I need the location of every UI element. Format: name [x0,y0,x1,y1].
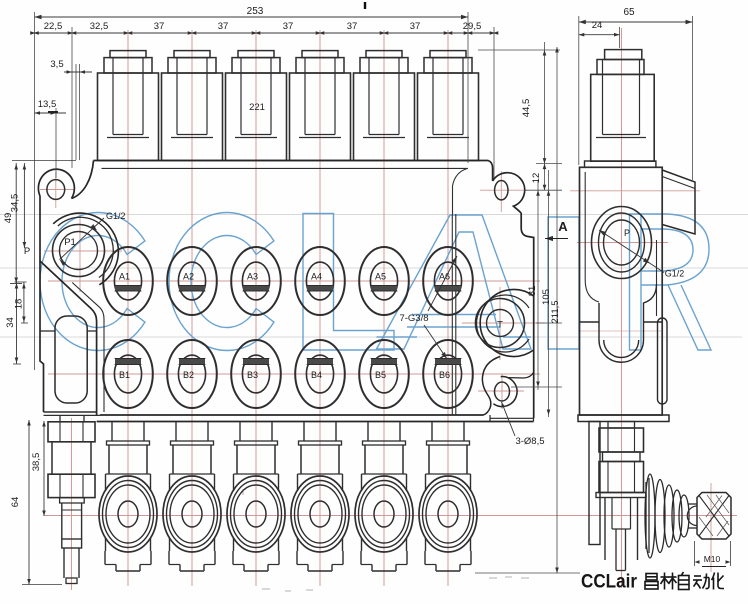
svg-text:B6: B6 [439,370,450,380]
svg-text:P: P [24,246,30,257]
svg-text:M10: M10 [704,554,721,564]
svg-text:24: 24 [592,20,603,31]
svg-text:A: A [558,219,568,234]
svg-text:G1/2: G1/2 [106,211,126,221]
svg-text:7-G3/8: 7-G3/8 [399,313,428,324]
svg-text:A5: A5 [375,272,386,282]
svg-text:A1: A1 [119,272,130,282]
svg-text:44,5: 44,5 [521,99,532,118]
svg-text:49: 49 [3,213,14,224]
svg-text:3,5: 3,5 [50,59,63,70]
svg-text:29,5: 29,5 [463,21,482,32]
svg-text:B1: B1 [119,370,130,380]
svg-text:A4: A4 [311,272,322,282]
svg-text:B3: B3 [247,370,258,380]
svg-text:22,5: 22,5 [44,21,63,32]
svg-text:37: 37 [347,21,358,32]
svg-text:B2: B2 [183,370,194,380]
svg-text:64: 64 [10,497,21,508]
svg-text:37: 37 [283,21,294,32]
svg-text:38,5: 38,5 [31,453,42,472]
svg-text:37: 37 [218,21,229,32]
svg-text:12: 12 [531,173,542,184]
svg-text:253: 253 [247,6,264,17]
svg-text:211,5: 211,5 [550,300,561,323]
svg-text:B4: B4 [311,370,322,380]
svg-text:CCLair: CCLair [581,572,638,593]
svg-text:65: 65 [623,7,635,18]
svg-text:3-Ø8,5: 3-Ø8,5 [515,436,544,447]
svg-text:A2: A2 [183,272,194,282]
svg-text:34,5: 34,5 [10,194,21,213]
svg-text:T: T [497,320,503,331]
svg-text:18: 18 [14,299,25,310]
svg-text:B5: B5 [375,370,386,380]
svg-text:32,5: 32,5 [90,21,109,32]
svg-text:P: P [624,228,630,238]
svg-text:13,5: 13,5 [38,99,57,110]
svg-text:G1/2: G1/2 [665,269,685,279]
svg-text:34: 34 [5,317,16,328]
svg-text:81: 81 [527,286,538,297]
svg-text:37: 37 [410,21,421,32]
svg-text:A3: A3 [247,272,258,282]
svg-text:37: 37 [154,21,165,32]
svg-text:221: 221 [249,102,265,113]
